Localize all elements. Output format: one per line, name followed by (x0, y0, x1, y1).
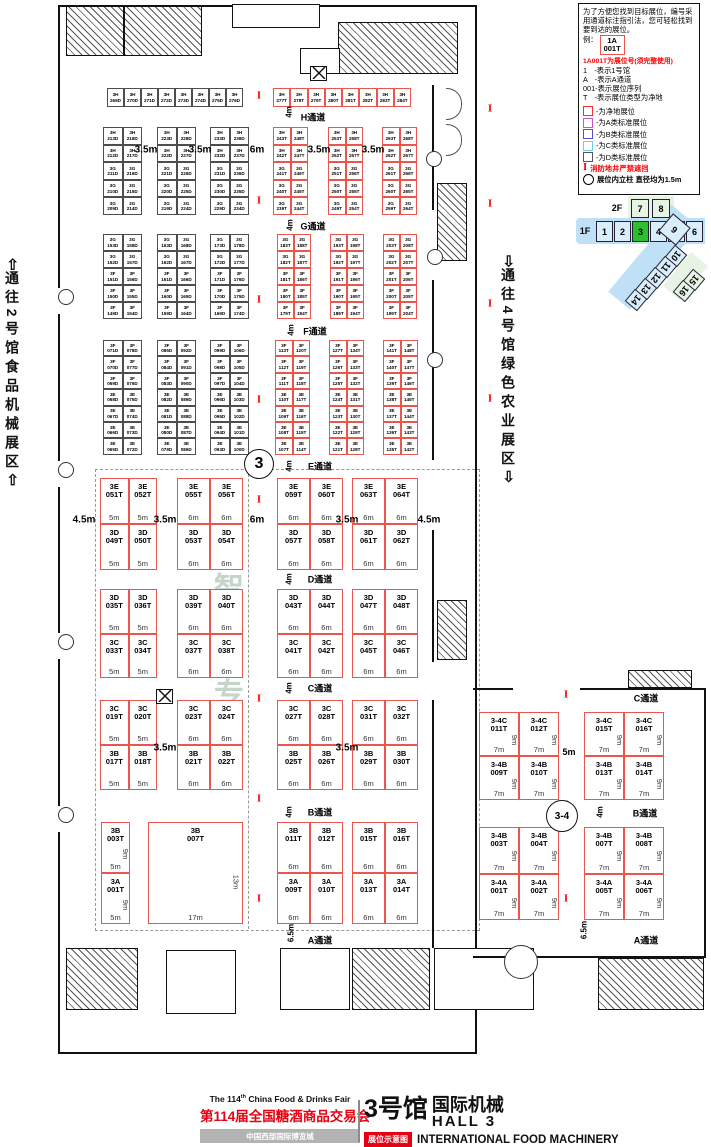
booth-3G-249T[interactable]: 3G249T (328, 197, 346, 215)
booth-3E-121T[interactable]: 3E121T (329, 438, 347, 454)
booth-3H-263T[interactable]: 3H263T (382, 127, 400, 145)
booth-3G-255T[interactable]: 3G255T (346, 180, 364, 198)
booth-3F-134T[interactable]: 3F134T (347, 340, 365, 356)
booth-width-dim: 7m (480, 746, 518, 754)
booth-3B-030T[interactable]: 3B030T6m (385, 745, 418, 790)
booth-3E-086D[interactable]: 3E086D (177, 438, 197, 454)
booth-3E-108T[interactable]: 3E108T (275, 422, 293, 438)
booth-3H-279T[interactable]: 3H279T (308, 88, 325, 107)
booth-3G-198T[interactable]: 3G198T (347, 234, 364, 251)
booth-3G-167D[interactable]: 3G167D (177, 251, 197, 268)
booth-3G-256T[interactable]: 3G256T (346, 162, 364, 180)
booth-3G-265T[interactable]: 3G265T (400, 180, 418, 198)
booth-3F-125T[interactable]: 3F125T (329, 373, 347, 389)
booth-3H-272D[interactable]: 3H272D (158, 88, 175, 107)
booth-3G-202T[interactable]: 3G202T (383, 251, 400, 268)
booth-3H-262T[interactable]: 3H262T (382, 145, 400, 163)
booth-3G-221D[interactable]: 3G221D (157, 162, 177, 180)
booth-3G-215D[interactable]: 3G215D (123, 180, 143, 198)
booth-3F-139T[interactable]: 3F139T (383, 373, 401, 389)
booth-3F-200T[interactable]: 3F200T (383, 285, 400, 302)
booth-3E-117T[interactable]: 3E117T (293, 389, 311, 405)
booth-3F-132T[interactable]: 3F132T (347, 373, 365, 389)
minimap-hall-2[interactable]: 2 (614, 221, 631, 242)
booth-3H-277T[interactable]: 3H277T (273, 88, 290, 107)
booth-3D-061T[interactable]: 3D061T6m (352, 524, 385, 570)
booth-3-4C-011T[interactable]: 3-4C011T7m9m (479, 712, 519, 756)
booth-3H-276D[interactable]: 3H276D (226, 88, 243, 107)
booth-3F-118T[interactable]: 3F118T (293, 373, 311, 389)
booth-3C-046T[interactable]: 3C046T6m (385, 634, 418, 679)
minimap-hall-8[interactable]: 8 (652, 199, 670, 218)
booth-3-4A-002T[interactable]: 3-4A002T7m9m (519, 874, 559, 921)
booth-3G-188T[interactable]: 3G188T (294, 234, 311, 251)
booth-3E-128T[interactable]: 3E128T (347, 438, 365, 454)
booth-3G-219D[interactable]: 3G219D (157, 197, 177, 215)
booth-3D-048T[interactable]: 3D048T6m (385, 589, 418, 634)
minimap-hall-7[interactable]: 7 (631, 199, 649, 218)
booth-3E-135T[interactable]: 3E135T (383, 438, 401, 454)
booth-3G-251T[interactable]: 3G251T (328, 162, 346, 180)
booth-3-4A-001T[interactable]: 3-4A001T7m9m (479, 874, 519, 921)
booth-3G-162D[interactable]: 3G162D (157, 251, 177, 268)
booth-3F-148T[interactable]: 3F148T (401, 340, 419, 356)
booth-3G-230D[interactable]: 3G230D (210, 180, 230, 198)
booth-3D-050T[interactable]: 3D050T5m (129, 524, 158, 570)
booth-3F-199T[interactable]: 3F199T (383, 302, 400, 319)
booth-3G-266T[interactable]: 3G266T (400, 162, 418, 180)
booth-3F-150D[interactable]: 3F150D (103, 285, 123, 302)
booth-3G-264T[interactable]: 3G264T (400, 197, 418, 215)
booth-3C-023T[interactable]: 3C023T6m (177, 700, 210, 745)
booth-3E-073D[interactable]: 3E073D (123, 422, 143, 438)
booth-3F-077D[interactable]: 3F077D (123, 356, 143, 372)
booth-3D-057T[interactable]: 3D057T6m (277, 524, 310, 570)
booth-3G-236D[interactable]: 3G236D (230, 162, 250, 180)
booth-3F-090D[interactable]: 3F090D (177, 373, 197, 389)
booth-3H-258T[interactable]: 3H258T (346, 127, 364, 145)
booth-3E-075D[interactable]: 3E075D (123, 389, 143, 405)
booth-3G-187T[interactable]: 3G187T (294, 251, 311, 268)
booth-3F-166D[interactable]: 3F166D (177, 268, 197, 285)
booth-3D-053T[interactable]: 3D053T6m (177, 524, 210, 570)
booth-3F-195T[interactable]: 3F195T (347, 285, 364, 302)
booth-3E-137T[interactable]: 3E137T (383, 406, 401, 422)
booth-3E-100D[interactable]: 3E100D (230, 438, 250, 454)
booth-3-4B-004T[interactable]: 3-4B004T7m9m (519, 827, 559, 874)
booth-3G-203T[interactable]: 3G203T (383, 234, 400, 251)
booth-3H-223D[interactable]: 3H223D (157, 127, 177, 145)
booth-3G-163D[interactable]: 3G163D (157, 234, 177, 251)
booth-3H-222D[interactable]: 3H222D (157, 145, 177, 163)
booth-3E-116T[interactable]: 3E116T (293, 406, 311, 422)
booth-3D-044T[interactable]: 3D044T6m (310, 589, 343, 634)
booth-number: 164D (181, 311, 192, 316)
booth-3A-013T[interactable]: 3A013T6m (352, 873, 385, 924)
booth-3F-165D[interactable]: 3F165D (177, 285, 197, 302)
booth-3E-068D[interactable]: 3E068D (103, 389, 123, 405)
booth-3G-224D[interactable]: 3G224D (177, 197, 197, 215)
booth-3D-043T[interactable]: 3D043T6m (277, 589, 310, 634)
booth-3E-124T[interactable]: 3E124T (329, 389, 347, 405)
booth-3H-233D[interactable]: 3H233D (210, 127, 230, 145)
booth-3E-110T[interactable]: 3E110T (275, 389, 293, 405)
booth-3C-037T[interactable]: 3C037T6m (177, 634, 210, 679)
booth-3H-274D[interactable]: 3H274D (192, 88, 209, 107)
booth-3G-182T[interactable]: 3G182T (277, 251, 294, 268)
booth-3B-017T[interactable]: 3B017T5m (100, 745, 129, 790)
booth-3H-271D[interactable]: 3H271D (141, 88, 158, 107)
booth-3G-260T[interactable]: 3G260T (382, 180, 400, 198)
booth-number: 247T (294, 153, 304, 158)
booth-3E-059T[interactable]: 3E059T6m (277, 478, 310, 524)
booth-3C-031T[interactable]: 3C031T6m (352, 700, 385, 745)
booth-3G-177D[interactable]: 3G177D (230, 251, 250, 268)
booth-3H-248T[interactable]: 3H248T (291, 127, 309, 145)
booth-3B-021T[interactable]: 3B021T6m (177, 745, 210, 790)
booth-3H-213D[interactable]: 3H213D (103, 127, 123, 145)
booth-3E-082D[interactable]: 3E082D (157, 389, 177, 405)
booth-3H-281T[interactable]: 3H281T (342, 88, 359, 107)
booth-3F-069D[interactable]: 3F069D (103, 373, 123, 389)
booth-3G-239T[interactable]: 3G239T (273, 197, 291, 215)
booth-3G-192T[interactable]: 3G192T (330, 251, 347, 268)
booth-3E-074D[interactable]: 3E074D (123, 406, 143, 422)
booth-3G-197T[interactable]: 3G197T (347, 251, 364, 268)
booth-3F-184T[interactable]: 3F184T (294, 302, 311, 319)
booth-3H-253T[interactable]: 3H253T (328, 127, 346, 145)
booth-3C-034T[interactable]: 3C034T5m (129, 634, 158, 679)
booth-3F-141T[interactable]: 3F141T (383, 340, 401, 356)
booth-3F-083D[interactable]: 3F083D (157, 373, 177, 389)
booth-3E-072D[interactable]: 3E072D (123, 438, 143, 454)
booth-3F-111T[interactable]: 3F111T (275, 373, 293, 389)
booth-3F-099D[interactable]: 3F099D (210, 340, 230, 356)
booth-3E-115T[interactable]: 3E115T (293, 422, 311, 438)
booth-3F-147T[interactable]: 3F147T (401, 356, 419, 372)
booth-3G-157D[interactable]: 3G157D (123, 251, 143, 268)
booth-3G-246T[interactable]: 3G246T (291, 162, 309, 180)
booth-3F-201T[interactable]: 3F201T (383, 268, 400, 285)
booth-3E-142T[interactable]: 3E142T (401, 438, 419, 454)
booth-3B-016T[interactable]: 3B016T6m (385, 822, 418, 873)
booth-3F-151D[interactable]: 3F151D (103, 268, 123, 285)
booth-3G-173D[interactable]: 3G173D (210, 234, 230, 251)
booth-3F-155D[interactable]: 3F155D (123, 285, 143, 302)
booth-3F-175D[interactable]: 3F175D (230, 285, 250, 302)
booth-3G-225D[interactable]: 3G225D (177, 180, 197, 198)
booth-3E-102D[interactable]: 3E102D (230, 406, 250, 422)
booth-3G-259T[interactable]: 3G259T (382, 197, 400, 215)
booth-3F-146T[interactable]: 3F146T (401, 373, 419, 389)
booth-3E-064T[interactable]: 3E064T6m (385, 478, 418, 524)
booth-3F-113T[interactable]: 3F113T (275, 340, 293, 356)
booth-3D-049T[interactable]: 3D049T5m (100, 524, 129, 570)
booth-3-4C-012T[interactable]: 3-4C012T7m9m (519, 712, 559, 756)
booth-3A-010T[interactable]: 3A010T6m (310, 873, 343, 924)
booth-3H-212D[interactable]: 3H212D (103, 145, 123, 163)
booth-3F-189T[interactable]: 3F189T (330, 302, 347, 319)
booth-3B-025T[interactable]: 3B025T6m (277, 745, 310, 790)
booth-3H-275D[interactable]: 3H275D (209, 88, 226, 107)
booth-3F-120T[interactable]: 3F120T (293, 340, 311, 356)
booth-3D-039T[interactable]: 3D039T6m (177, 589, 210, 634)
booth-3F-169D[interactable]: 3F169D (210, 302, 230, 319)
booth-3H-238D[interactable]: 3H238D (230, 127, 250, 145)
booth-3H-273D[interactable]: 3H273D (175, 88, 192, 107)
booth-3-4B-014T[interactable]: 3-4B014T7m9m (624, 756, 664, 800)
booth-3F-084D[interactable]: 3F084D (157, 356, 177, 372)
booth-3G-208T[interactable]: 3G208T (400, 234, 417, 251)
booth-3F-078D[interactable]: 3F078D (123, 340, 143, 356)
booth-3F-180T[interactable]: 3F180T (277, 285, 294, 302)
booth-3E-051T[interactable]: 3E051T5m (100, 478, 129, 524)
booth-3G-216D[interactable]: 3G216D (123, 162, 143, 180)
booth-3E-107T[interactable]: 3E107T (275, 438, 293, 454)
booth-3F-133T[interactable]: 3F133T (347, 356, 365, 372)
booth-3H-228D[interactable]: 3H228D (177, 127, 197, 145)
booth-3C-038T[interactable]: 3C038T6m (210, 634, 243, 679)
booth-width-dim: 5m (130, 514, 157, 522)
booth-3G-245T[interactable]: 3G245T (291, 180, 309, 198)
booth-3D-054T[interactable]: 3D054T6m (210, 524, 243, 570)
booth-3G-168D[interactable]: 3G168D (177, 234, 197, 251)
booth-3H-270D[interactable]: 3H270D (124, 88, 141, 107)
booth-number: 079D (161, 447, 172, 452)
booth-3F-191T[interactable]: 3F191T (330, 268, 347, 285)
booth-3B-022T[interactable]: 3B022T6m (210, 745, 243, 790)
booth-3G-254T[interactable]: 3G254T (346, 197, 364, 215)
booth-3E-056T[interactable]: 3E056T6m (210, 478, 243, 524)
booth-3E-144T[interactable]: 3E144T (401, 406, 419, 422)
booth-3B-011T[interactable]: 3B011T6m (277, 822, 310, 873)
booth-3G-240T[interactable]: 3G240T (273, 180, 291, 198)
booth-3E-138T[interactable]: 3E138T (383, 389, 401, 405)
booth-3F-186T[interactable]: 3F186T (294, 268, 311, 285)
booth-3F-206T[interactable]: 3F206T (400, 268, 417, 285)
booth-3F-140T[interactable]: 3F140T (383, 356, 401, 372)
booth-3-4B-007T[interactable]: 3-4B007T7m9m (584, 827, 624, 874)
booth-3-4C-016T[interactable]: 3-4C016T7m9m (624, 712, 664, 756)
booth-3H-247T[interactable]: 3H247T (291, 145, 309, 163)
booth-3G-231D[interactable]: 3G231D (210, 162, 230, 180)
booth-3C-027T[interactable]: 3C027T6m (277, 700, 310, 745)
booth-3G-193T[interactable]: 3G193T (330, 234, 347, 251)
booth-3F-076D[interactable]: 3F076D (123, 373, 143, 389)
booth-3D-036T[interactable]: 3D036T5m (129, 589, 158, 634)
booth-3E-088D[interactable]: 3E088D (177, 406, 197, 422)
booth-3E-089D[interactable]: 3E089D (177, 389, 197, 405)
booth-3C-032T[interactable]: 3C032T6m (385, 700, 418, 745)
booth-3F-204T[interactable]: 3F204T (400, 302, 417, 319)
booth-3C-033T[interactable]: 3C033T5m (100, 634, 129, 679)
booth-3G-226D[interactable]: 3G226D (177, 162, 197, 180)
booth-3F-126T[interactable]: 3F126T (329, 356, 347, 372)
booth-3B-012T[interactable]: 3B012T6m (310, 822, 343, 873)
booth-3C-041T[interactable]: 3C041T6m (277, 634, 310, 679)
booth-3F-085D[interactable]: 3F085D (157, 340, 177, 356)
booth-3G-210D[interactable]: 3G210D (103, 180, 123, 198)
booth-3F-119T[interactable]: 3F119T (293, 356, 311, 372)
booth-3H-243T[interactable]: 3H243T (273, 127, 291, 145)
booth-3F-170D[interactable]: 3F170D (210, 285, 230, 302)
booth-3-4B-003T[interactable]: 3-4B003T7m9m (479, 827, 519, 874)
booth-3G-241T[interactable]: 3G241T (273, 162, 291, 180)
booth-3D-058T[interactable]: 3D058T6m (310, 524, 343, 570)
booth-3-4A-006T[interactable]: 3-4A006T7m9m (624, 874, 664, 921)
booth-number: 185T (297, 294, 307, 299)
booth-3G-211D[interactable]: 3G211D (103, 162, 123, 180)
booth-3H-283T[interactable]: 3H283T (377, 88, 394, 107)
booth-3H-282T[interactable]: 3H282T (359, 88, 376, 107)
booth-3A-014T[interactable]: 3A014T6m (385, 873, 418, 924)
booth-3G-152D[interactable]: 3G152D (103, 251, 123, 268)
booth-3-4A-005T[interactable]: 3-4A005T7m9m (584, 874, 624, 921)
booth-3E-087D[interactable]: 3E087D (177, 422, 197, 438)
booth-3F-091D[interactable]: 3F091D (177, 356, 197, 372)
booth-3E-131T[interactable]: 3E131T (347, 389, 365, 405)
booth-3E-123T[interactable]: 3E123T (329, 406, 347, 422)
booth-3H-278T[interactable]: 3H278T (290, 88, 307, 107)
booth-3F-176D[interactable]: 3F176D (230, 268, 250, 285)
booth-3F-092D[interactable]: 3F092D (177, 340, 197, 356)
booth-3B-003T[interactable]: 3B003T5m9m (101, 822, 130, 873)
booth-3C-024T[interactable]: 3C024T6m (210, 700, 243, 745)
booth-3E-136T[interactable]: 3E136T (383, 422, 401, 438)
booth-3H-232D[interactable]: 3H232D (210, 145, 230, 163)
booth-3H-242T[interactable]: 3H242T (273, 145, 291, 163)
booth-3F-160D[interactable]: 3F160D (157, 285, 177, 302)
booth-3G-209D[interactable]: 3G209D (103, 197, 123, 215)
booth-3G-207T[interactable]: 3G207T (400, 251, 417, 268)
booth-3B-015T[interactable]: 3B015T6m (352, 822, 385, 873)
booth-3A-009T[interactable]: 3A009T6m (277, 873, 310, 924)
booth-3G-183T[interactable]: 3G183T (277, 234, 294, 251)
booth-3E-080D[interactable]: 3E080D (157, 422, 177, 438)
booth-3G-244T[interactable]: 3G244T (291, 197, 309, 215)
booth-3-4B-008T[interactable]: 3-4B008T7m9m (624, 827, 664, 874)
booth-3F-190T[interactable]: 3F190T (330, 285, 347, 302)
booth-3D-047T[interactable]: 3D047T6m (352, 589, 385, 634)
booth-3E-079D[interactable]: 3E079D (157, 438, 177, 454)
booth-3E-101D[interactable]: 3E101D (230, 422, 250, 438)
booth-3C-045T[interactable]: 3C045T6m (352, 634, 385, 679)
booth-3F-149D[interactable]: 3F149D (103, 302, 123, 319)
booth-3F-154D[interactable]: 3F154D (123, 302, 143, 319)
booth-3D-040T[interactable]: 3D040T6m (210, 589, 243, 634)
booth-3E-065D[interactable]: 3E065D (103, 438, 123, 454)
booth-3G-229D[interactable]: 3G229D (210, 197, 230, 215)
booth-3E-103D[interactable]: 3E103D (230, 389, 250, 405)
booth-3F-159D[interactable]: 3F159D (157, 302, 177, 319)
booth-3G-261T[interactable]: 3G261T (382, 162, 400, 180)
booth-3E-130T[interactable]: 3E130T (347, 406, 365, 422)
booth-3C-042T[interactable]: 3C042T6m (310, 634, 343, 679)
booth-3E-055T[interactable]: 3E055T6m (177, 478, 210, 524)
booth-3F-112T[interactable]: 3F112T (275, 356, 293, 372)
booth-3G-172D[interactable]: 3G172D (210, 251, 230, 268)
booth-3F-097D[interactable]: 3F097D (210, 373, 230, 389)
booth-3H-218D[interactable]: 3H218D (123, 127, 143, 145)
booth-3A-001T[interactable]: 3A001T5m9m (101, 873, 130, 924)
booth-3E-081D[interactable]: 3E081D (157, 406, 177, 422)
booth-3E-122T[interactable]: 3E122T (329, 422, 347, 438)
booth-3B-007T[interactable]: 3B007T17m13m (148, 822, 243, 924)
booth-3G-235D[interactable]: 3G235D (230, 180, 250, 198)
booth-3E-067D[interactable]: 3E067D (103, 406, 123, 422)
booth-3F-161D[interactable]: 3F161D (157, 268, 177, 285)
booth-3F-181T[interactable]: 3F181T (277, 268, 294, 285)
booth-3E-143T[interactable]: 3E143T (401, 422, 419, 438)
booth-3E-096D[interactable]: 3E096D (210, 389, 230, 405)
minimap-hall-6[interactable]: 6 (686, 221, 703, 242)
booth-number: 237D (234, 153, 245, 158)
minimap-hall-3[interactable]: 3 (632, 221, 649, 242)
booth-3H-267T[interactable]: 3H267T (400, 145, 418, 163)
booth-3G-220D[interactable]: 3G220D (157, 180, 177, 198)
booth-3F-127T[interactable]: 3F127T (329, 340, 347, 356)
booth-3F-104D[interactable]: 3F104D (230, 373, 250, 389)
booth-3F-156D[interactable]: 3F156D (123, 268, 143, 285)
booth-3H-269D[interactable]: 3H269D (107, 88, 124, 107)
booth-3-4C-015T[interactable]: 3-4C015T7m9m (584, 712, 624, 756)
booth-3G-153D[interactable]: 3G153D (103, 234, 123, 251)
booth-3F-105D[interactable]: 3F105D (230, 356, 250, 372)
booth-3-4B-013T[interactable]: 3-4B013T7m9m (584, 756, 624, 800)
booth-3H-284T[interactable]: 3H284T (394, 88, 411, 107)
booth-3G-250T[interactable]: 3G250T (328, 180, 346, 198)
booth-3C-028T[interactable]: 3C028T6m (310, 700, 343, 745)
booth-3H-257T[interactable]: 3H257T (346, 145, 364, 163)
booth-3G-178D[interactable]: 3G178D (230, 234, 250, 251)
booth-3F-164D[interactable]: 3F164D (177, 302, 197, 319)
booth-3F-194T[interactable]: 3F194T (347, 302, 364, 319)
booth-3E-066D[interactable]: 3E066D (103, 422, 123, 438)
booth-3F-179T[interactable]: 3F179T (277, 302, 294, 319)
booth-3F-205T[interactable]: 3F205T (400, 285, 417, 302)
booth-3E-094D[interactable]: 3E094D (210, 422, 230, 438)
booth-3E-145T[interactable]: 3E145T (401, 389, 419, 405)
booth-3E-129T[interactable]: 3E129T (347, 422, 365, 438)
booth-3H-280T[interactable]: 3H280T (325, 88, 342, 107)
booth-3G-158D[interactable]: 3G158D (123, 234, 143, 251)
booth-3G-234D[interactable]: 3G234D (230, 197, 250, 215)
booth-3F-171D[interactable]: 3F171D (210, 268, 230, 285)
booth-3F-071D[interactable]: 3F071D (103, 340, 123, 356)
booth-3-4B-009T[interactable]: 3-4B009T7m9m (479, 756, 519, 800)
booth-3G-214D[interactable]: 3G214D (123, 197, 143, 215)
booth-3E-114T[interactable]: 3E114T (293, 438, 311, 454)
booth-3F-185T[interactable]: 3F185T (294, 285, 311, 302)
booth-3F-106D[interactable]: 3F106D (230, 340, 250, 356)
booth-3H-237D[interactable]: 3H237D (230, 145, 250, 163)
booth-3E-093D[interactable]: 3E093D (210, 438, 230, 454)
booth-3E-095D[interactable]: 3E095D (210, 406, 230, 422)
booth-3F-070D[interactable]: 3F070D (103, 356, 123, 372)
booth-3D-035T[interactable]: 3D035T5m (100, 589, 129, 634)
booth-3E-109T[interactable]: 3E109T (275, 406, 293, 422)
booth-3C-019T[interactable]: 3C019T5m (100, 700, 129, 745)
booth-3H-268T[interactable]: 3H268T (400, 127, 418, 145)
minimap-hall-1[interactable]: 1 (596, 221, 613, 242)
booth-3F-196T[interactable]: 3F196T (347, 268, 364, 285)
booth-3C-020T[interactable]: 3C020T5m (129, 700, 158, 745)
booth-3F-174D[interactable]: 3F174D (230, 302, 250, 319)
booth-3D-062T[interactable]: 3D062T6m (385, 524, 418, 570)
booth-3-4B-010T[interactable]: 3-4B010T7m9m (519, 756, 559, 800)
booth-3F-098D[interactable]: 3F098D (210, 356, 230, 372)
booth-3H-252T[interactable]: 3H252T (328, 145, 346, 163)
